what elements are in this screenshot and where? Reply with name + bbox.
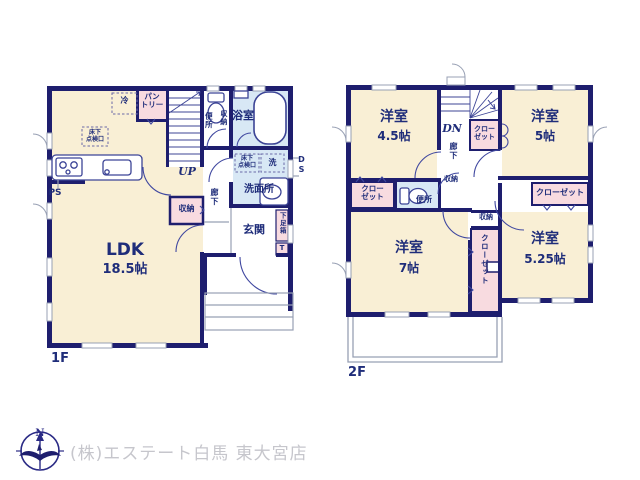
- bath-label: 浴室: [230, 110, 256, 122]
- stairs-up-label: UP: [172, 166, 202, 178]
- floorplan-image: N LDK 18.5帖 パントリー 冷 床下点検口 UP 便所 収納 浴室 床下…: [0, 0, 640, 480]
- balcony-outline: [348, 317, 502, 362]
- ldk-label: LDK: [85, 241, 165, 260]
- toilet-label-1f: 便所: [204, 112, 212, 129]
- closet-mid-label: クローゼット: [480, 234, 488, 285]
- room7-size: 7帖: [379, 262, 439, 275]
- hall-label-1f: 廊下: [209, 188, 218, 206]
- stairs-dn-label: DN: [438, 123, 466, 135]
- room525-label: 洋室: [515, 232, 575, 248]
- pantry-label: パントリー: [137, 93, 167, 110]
- toilet-tank-1f: [208, 93, 224, 102]
- company-name: (株)エステート白馬 東大宮店: [70, 439, 308, 464]
- kitchen-sink-icon: [103, 160, 131, 175]
- room5-label: 洋室: [515, 110, 575, 126]
- compass-north-label: N: [35, 428, 44, 439]
- closet-stairs-label: クローゼット: [470, 126, 499, 142]
- compass-icon: N: [16, 428, 64, 470]
- storage-under-stairs-label: 収納: [438, 176, 464, 184]
- room525-size: 5.25帖: [515, 253, 575, 266]
- entrance-label: 玄関: [234, 224, 274, 236]
- toilet-label-2f: 便所: [411, 196, 437, 205]
- washroom-label: 洗面所: [233, 184, 285, 195]
- floorplan-1f: [33, 86, 299, 348]
- storage-label-1f: 収納: [170, 205, 203, 214]
- ds-label: DS: [296, 155, 305, 175]
- washer-label: 洗: [261, 159, 284, 168]
- closet-right-label: クローゼット: [533, 189, 587, 198]
- fridge-label: 冷: [112, 97, 137, 106]
- room45-label: 洋室: [364, 110, 424, 126]
- shoebox-label: 下足箱: [278, 212, 285, 235]
- closet-left-label: クローゼット: [352, 185, 393, 202]
- floor-hatch-label-1: 床下点検口: [82, 130, 108, 143]
- stairs-2f: [441, 90, 498, 118]
- ldk-size: 18.5帖: [85, 263, 165, 278]
- floorplan-2f: [332, 64, 607, 362]
- storage-box-label: 収納: [471, 214, 501, 222]
- bath-counter: [234, 91, 248, 98]
- room5-size: 5帖: [515, 130, 575, 143]
- room7-label: 洋室: [379, 241, 439, 257]
- hall-label-2f: 廊下: [448, 142, 457, 160]
- room45-size: 4.5帖: [364, 130, 424, 143]
- toilet-storage-label: 収納: [219, 110, 227, 126]
- shoebox-t-label: T: [276, 245, 288, 253]
- floor-label-1f: 1F: [48, 352, 72, 367]
- ps-label: PS: [44, 188, 66, 198]
- floor-hatch-label-2: 床下点検口: [235, 156, 259, 169]
- bathtub-icon: [254, 92, 286, 144]
- floor-label-2f: 2F: [344, 366, 370, 381]
